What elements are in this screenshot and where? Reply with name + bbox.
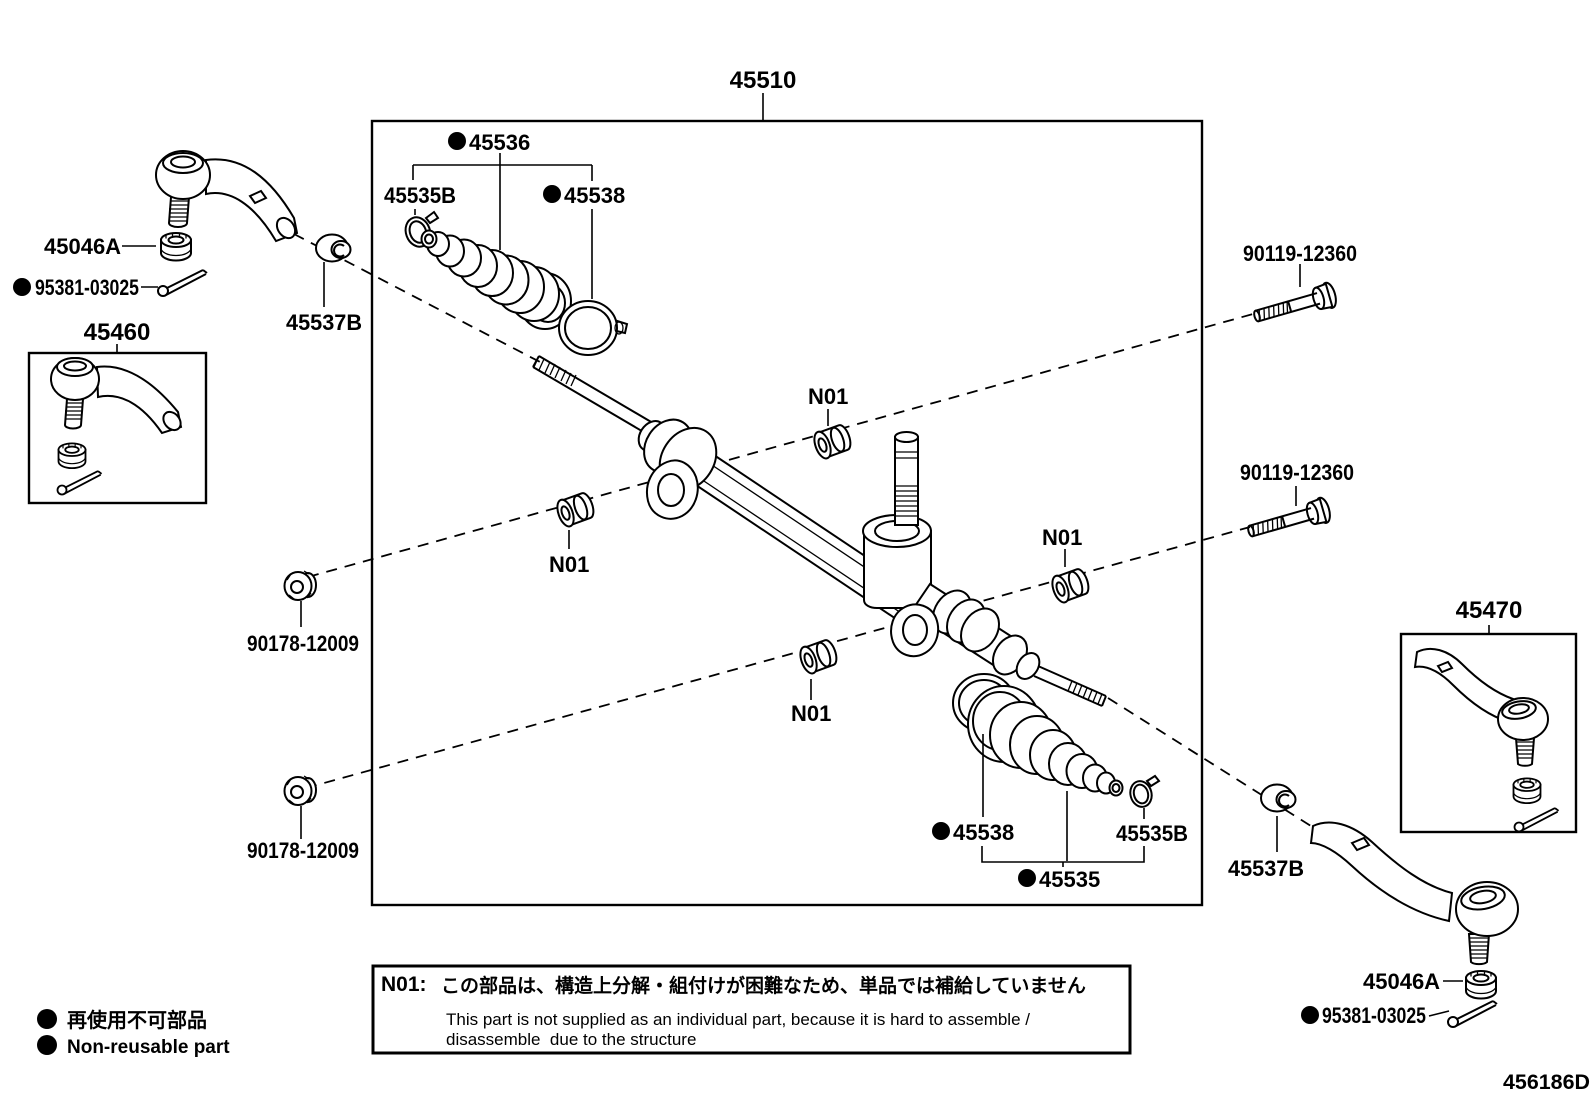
mount-nut-1 (285, 571, 317, 600)
cotter-pin-left (158, 270, 207, 296)
steering-rack-boot-left-drawing (402, 212, 627, 355)
legend-text-en: Non-reusable part (67, 1037, 230, 1058)
mount-nut-2 (285, 776, 317, 805)
cotter-pin-right (1448, 1001, 1497, 1027)
non-reusable-dot-95381-left (13, 278, 31, 296)
tie-rod-end-45470-box (1401, 634, 1576, 832)
part-callout-95381-left: 95381-03025 (35, 275, 139, 300)
part-callout-90178-1: 90178-12009 (247, 631, 359, 656)
boot-clamp-large-left (559, 301, 627, 355)
part-callout-45535: 45535 (1039, 867, 1100, 892)
note-ref-callout-4: N01 (1042, 525, 1082, 550)
mount-bolt-1 (1251, 281, 1338, 329)
note-text-jp: この部品は、構造上分解・組付けが困難なため、単品では補給していません (441, 974, 1086, 997)
non-reusable-legend: 再使用不可部品 Non-reusable part (37, 1008, 230, 1058)
castle-nut-left (161, 233, 191, 261)
non-reusable-dot-45538-right (932, 822, 950, 840)
part-callout-90178-2: 90178-12009 (247, 838, 359, 863)
tie-rod-end-45460-box (29, 353, 206, 503)
non-reusable-dot-45535 (1018, 869, 1036, 887)
note-ref-callout-2: N01 (549, 552, 589, 577)
part-callout-45537B-right: 45537B (1228, 856, 1304, 881)
steering-rack-boot-right-drawing (953, 674, 1159, 809)
rack-end-collar-left (316, 235, 351, 262)
part-callout-45538-left: 45538 (564, 183, 625, 208)
non-reusable-dot-45538-left (543, 185, 561, 203)
part-callout-90119-2: 90119-12360 (1240, 460, 1354, 485)
part-callout-45535B-right: 45535B (1116, 821, 1188, 846)
note-text-en-line1: This part is not supplied as an individu… (446, 1010, 1030, 1029)
legend-dot-en (37, 1035, 57, 1055)
part-callout-45536: 45536 (469, 130, 530, 155)
non-reusable-dot-45536 (448, 132, 466, 150)
note-box: N01: この部品は、構造上分解・組付けが困難なため、単品では補給していません … (373, 966, 1130, 1053)
castle-nut-right (1466, 971, 1496, 999)
part-callout-45460: 45460 (84, 319, 151, 346)
cotter-pin-45470 (1515, 808, 1559, 831)
note-ref-label: N01: (381, 973, 427, 996)
part-callout-45535B-left: 45535B (384, 183, 456, 208)
note-ref-callout-1: N01 (808, 384, 848, 409)
parts-diagram-canvas: 45510 45536 45535B 45538 45046A 95381-03… (0, 0, 1592, 1099)
part-callout-45537B-left: 45537B (286, 310, 362, 335)
legend-text-jp: 再使用不可部品 (67, 1008, 207, 1032)
part-callouts: 45510 45536 45535B 45538 45046A 95381-03… (13, 67, 1522, 1028)
part-callout-45510: 45510 (730, 67, 797, 94)
part-callout-95381-right: 95381-03025 (1322, 1003, 1426, 1028)
boot-clamp-small-right (1127, 776, 1159, 809)
rack-end-collar-right (1261, 785, 1296, 812)
part-callout-45046A-right: 45046A (1363, 969, 1440, 994)
mount-bushing-3 (797, 637, 839, 675)
mount-bolt-2 (1245, 496, 1332, 544)
tie-rod-end-top-left-drawing (156, 151, 299, 242)
castle-nut-45460 (59, 443, 86, 468)
tie-rod-end-bottom-right-drawing (1311, 823, 1518, 965)
part-callout-45538-right: 45538 (953, 820, 1014, 845)
non-reusable-dot-95381-right (1301, 1006, 1319, 1024)
drawing-code: 456186D (1503, 1071, 1590, 1094)
legend-dot-jp (37, 1009, 57, 1029)
cotter-pin-45460 (58, 471, 102, 494)
part-callout-45046A-left: 45046A (44, 234, 121, 259)
part-callout-45470: 45470 (1456, 597, 1523, 624)
mount-bushing-1 (811, 422, 853, 460)
castle-nut-45470 (1514, 778, 1541, 803)
parts-diagram-page: 45510 45536 45535B 45538 45046A 95381-03… (0, 0, 1592, 1099)
note-ref-callout-3: N01 (791, 701, 831, 726)
mount-bushing-2 (554, 490, 596, 528)
part-callout-90119-1: 90119-12360 (1243, 241, 1357, 266)
note-text-en-line2: disassemble due to the structure (446, 1030, 696, 1049)
